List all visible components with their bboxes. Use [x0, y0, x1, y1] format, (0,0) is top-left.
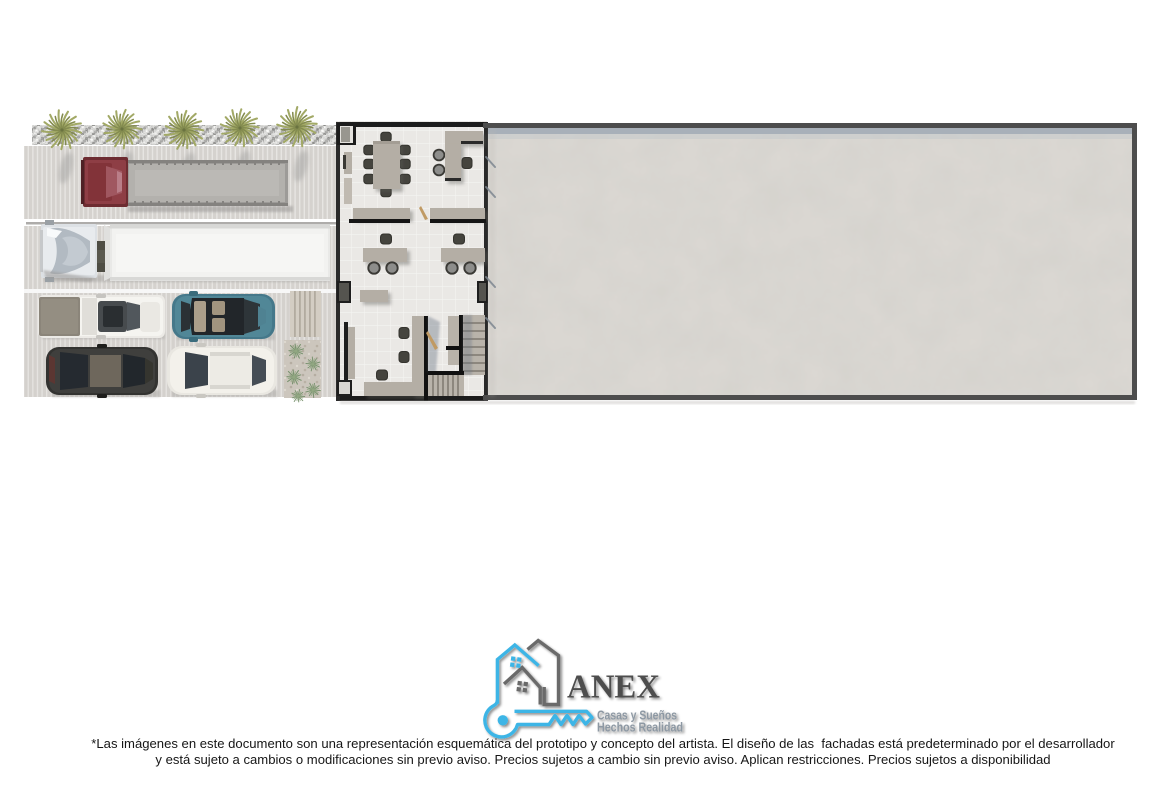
svg-text:Hechos Realidad: Hechos Realidad: [597, 721, 683, 735]
svg-text:ANEX: ANEX: [567, 669, 660, 706]
